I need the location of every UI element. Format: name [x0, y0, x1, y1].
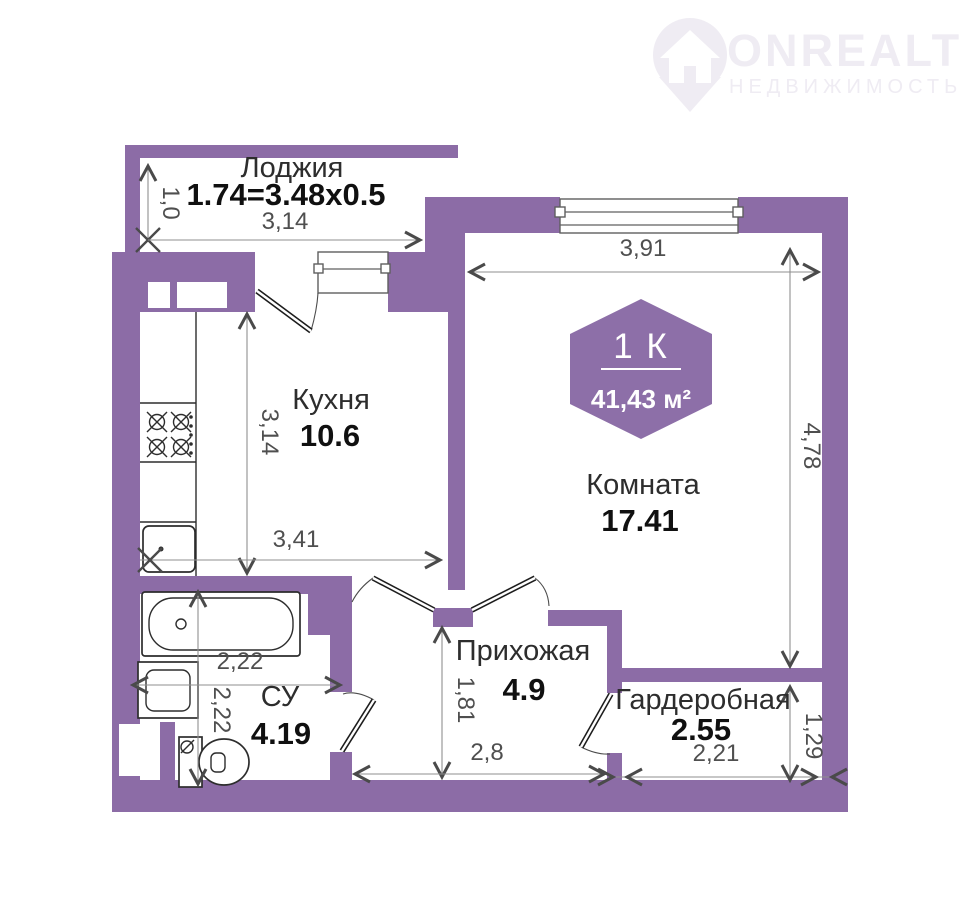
badge-rooms-label: 1 К: [613, 327, 669, 366]
wall-loggia-right-pier: [425, 197, 465, 255]
dim-wardrobe-depth: 1,29: [800, 713, 827, 760]
dim-bathroom-depth: 2,22: [208, 687, 235, 734]
label-wardrobe-area: 2.55: [671, 712, 731, 747]
wall-bath-right-stub: [330, 752, 352, 792]
wall-kitchen-room: [448, 312, 465, 590]
wall-bath-right: [330, 635, 352, 692]
logo-tagline-text: НЕДВИЖИМОСТЬ: [729, 76, 960, 98]
label-kitchen-area: 10.6: [300, 418, 360, 453]
vent-shaft-large: [177, 282, 227, 308]
dim-bathroom-width: 2,22: [217, 648, 264, 675]
dim-hallway-width: 2,8: [470, 739, 503, 766]
window-living-room: [555, 199, 743, 233]
label-loggia-formula: 1.74=3.48x0.5: [186, 177, 385, 212]
niche-left-wall: [119, 724, 140, 776]
label-kitchen-name: Кухня: [292, 384, 370, 416]
wall-hall-right-stub: [607, 753, 622, 792]
logo-brand-text: ONREALT: [727, 25, 960, 76]
wall-room-top-right: [738, 197, 848, 233]
dim-living-height: 4,78: [798, 423, 825, 470]
stove-icon: [147, 412, 193, 457]
dim-kitchen-width: 3,41: [273, 526, 320, 553]
floorplan-canvas: ONREALT НЕДВИЖИМОСТЬ: [0, 0, 960, 910]
floorplan-svg: ONREALT НЕДВИЖИМОСТЬ: [0, 0, 960, 910]
dim-living-width: 3,91: [620, 235, 667, 262]
badge-total-area: 41,43 м²: [591, 384, 692, 414]
wall-hall-right: [607, 613, 622, 693]
door-balcony: [257, 291, 318, 331]
dim-hallway-depth: 1,81: [452, 677, 479, 724]
door-wardrobe: [581, 694, 611, 754]
label-bathroom-name: СУ: [261, 681, 300, 713]
vent-shaft-small: [148, 282, 170, 308]
label-living-area: 17.41: [601, 503, 679, 538]
wall-door-pillar: [433, 608, 473, 627]
dim-kitchen-depth: 3,14: [256, 409, 283, 456]
door-living-room: [472, 578, 549, 610]
door-kitchen: [352, 578, 434, 610]
dim-loggia-depth: 1,0: [157, 186, 184, 219]
dim-loggia-width: 3,14: [262, 208, 309, 235]
wall-toilet-partition: [160, 722, 175, 784]
bathtub-icon: [142, 592, 300, 656]
bath-sink-icon: [138, 662, 198, 718]
label-hallway-name: Прихожая: [456, 635, 590, 667]
label-living-name: Комната: [586, 469, 700, 501]
toilet-icon: [179, 737, 249, 787]
door-bathroom: [342, 693, 374, 751]
wall-kitchen-loggia-right: [388, 252, 465, 312]
wall-bath-right-block: [308, 576, 352, 635]
logo-pin-tail: [659, 77, 721, 112]
label-bathroom-area: 4.19: [251, 716, 311, 751]
window-kitchen: [314, 252, 390, 293]
label-hallway-area: 4.9: [502, 672, 545, 707]
wall-room-wardrobe: [622, 668, 822, 682]
wall-loggia-left: [125, 145, 140, 258]
kitchen-sink-icon: [143, 526, 195, 572]
watermark-logo: ONREALT НЕДВИЖИМОСТЬ: [653, 18, 960, 112]
area-badge: 1 К 41,43 м²: [570, 299, 712, 439]
